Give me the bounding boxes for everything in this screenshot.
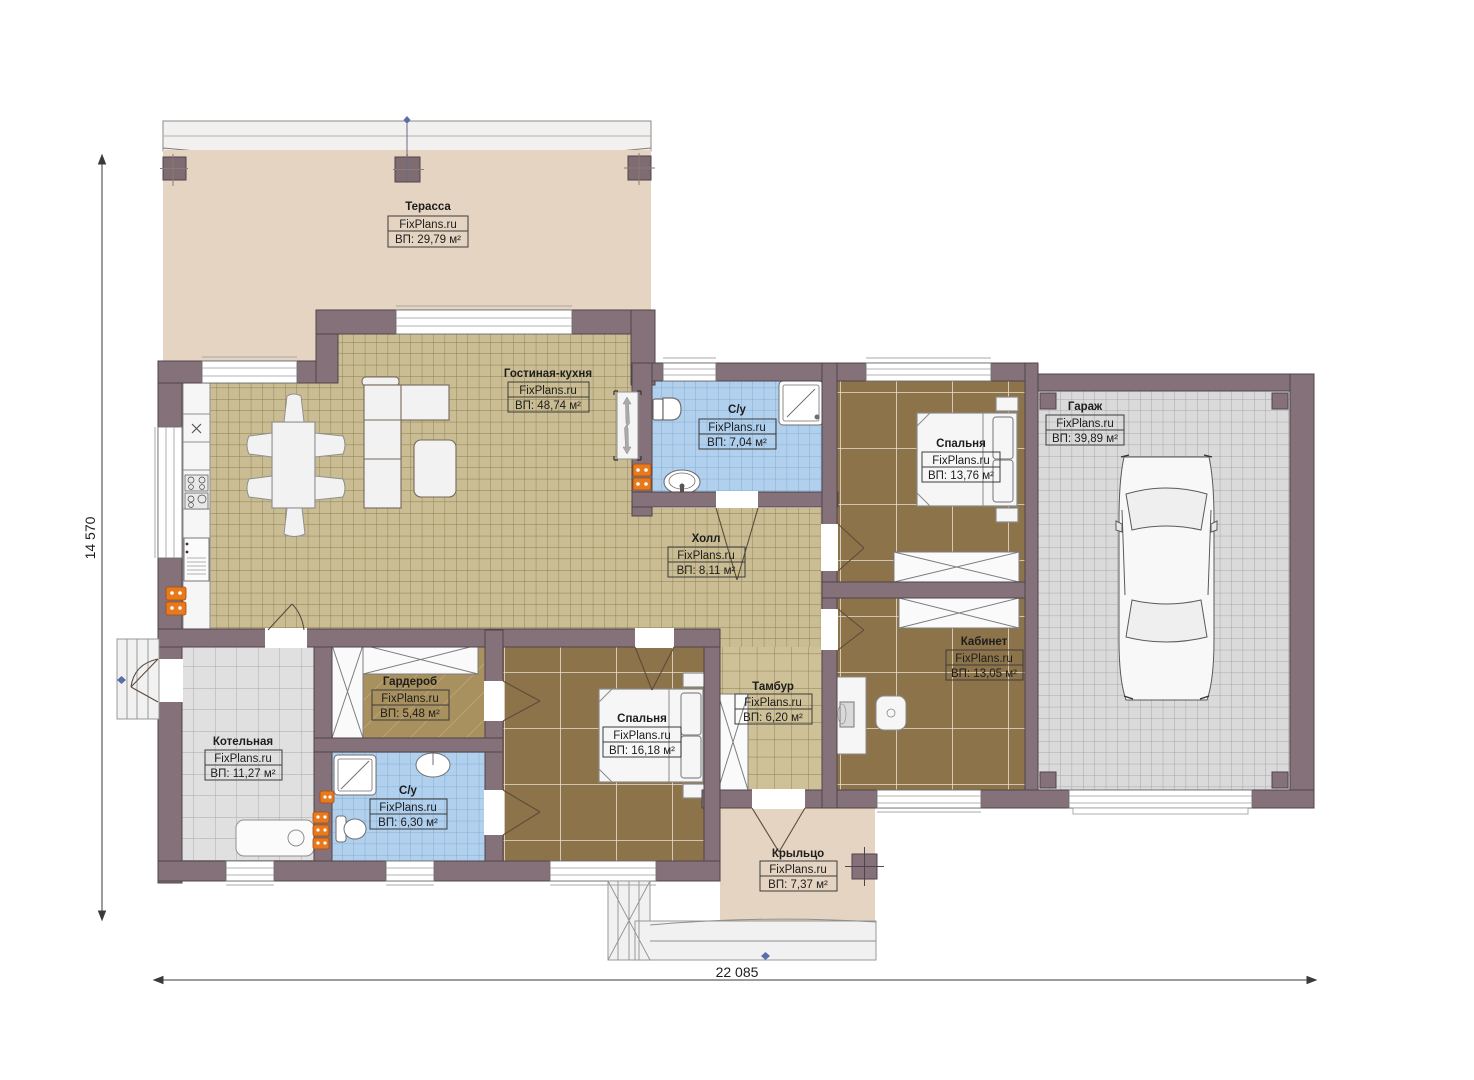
svg-text:Гостиная-кухня: Гостиная-кухня — [504, 368, 592, 380]
svg-text:Крыльцо: Крыльцо — [772, 848, 824, 860]
svg-text:Тамбур: Тамбур — [752, 681, 794, 693]
svg-text:Терасса: Терасса — [405, 201, 451, 213]
svg-text:ВП: 5,48 м²: ВП: 5,48 м² — [380, 708, 440, 720]
svg-text:FixPlans.ru: FixPlans.ru — [932, 455, 990, 467]
svg-text:ВП: 16,18 м²: ВП: 16,18 м² — [609, 745, 675, 757]
svg-text:FixPlans.ru: FixPlans.ru — [381, 693, 439, 705]
svg-text:Спальня: Спальня — [936, 438, 986, 450]
svg-text:ВП: 11,27 м²: ВП: 11,27 м² — [210, 768, 275, 780]
svg-text:ВП: 48,74 м²: ВП: 48,74 м² — [515, 400, 581, 412]
svg-text:ВП: 29,79 м²: ВП: 29,79 м² — [395, 234, 461, 246]
svg-text:FixPlans.ru: FixPlans.ru — [399, 219, 457, 231]
svg-text:ВП: 13,76 м²: ВП: 13,76 м² — [928, 470, 994, 482]
svg-text:ВП: 7,04 м²: ВП: 7,04 м² — [707, 437, 767, 449]
svg-text:ВП: 6,30 м²: ВП: 6,30 м² — [378, 817, 438, 829]
svg-text:14 570: 14 570 — [82, 516, 98, 559]
svg-text:FixPlans.ru: FixPlans.ru — [519, 385, 577, 397]
svg-text:22 085: 22 085 — [716, 964, 759, 980]
svg-text:FixPlans.ru: FixPlans.ru — [955, 653, 1013, 665]
svg-text:FixPlans.ru: FixPlans.ru — [744, 697, 802, 709]
svg-text:FixPlans.ru: FixPlans.ru — [1056, 418, 1114, 430]
svg-text:ВП: 13,05 м²: ВП: 13,05 м² — [951, 668, 1017, 680]
svg-text:FixPlans.ru: FixPlans.ru — [379, 802, 437, 814]
svg-text:ВП: 6,20 м²: ВП: 6,20 м² — [743, 712, 803, 724]
svg-text:FixPlans.ru: FixPlans.ru — [214, 753, 272, 765]
svg-text:Гараж: Гараж — [1068, 401, 1103, 413]
svg-text:Котельная: Котельная — [213, 736, 273, 748]
svg-text:Спальня: Спальня — [617, 713, 667, 725]
svg-text:Холл: Холл — [692, 533, 721, 545]
svg-text:ВП: 39,89 м²: ВП: 39,89 м² — [1052, 433, 1118, 445]
svg-text:FixPlans.ru: FixPlans.ru — [769, 864, 827, 876]
svg-text:С/у: С/у — [728, 404, 747, 416]
svg-text:ВП: 7,37 м²: ВП: 7,37 м² — [768, 879, 828, 891]
svg-text:FixPlans.ru: FixPlans.ru — [677, 550, 735, 562]
svg-text:FixPlans.ru: FixPlans.ru — [708, 422, 766, 434]
svg-text:ВП: 8,11 м²: ВП: 8,11 м² — [677, 565, 736, 577]
svg-text:Гардероб: Гардероб — [383, 676, 437, 688]
svg-text:Кабинет: Кабинет — [961, 636, 1008, 648]
svg-text:FixPlans.ru: FixPlans.ru — [613, 730, 671, 742]
svg-text:С/у: С/у — [399, 785, 418, 797]
